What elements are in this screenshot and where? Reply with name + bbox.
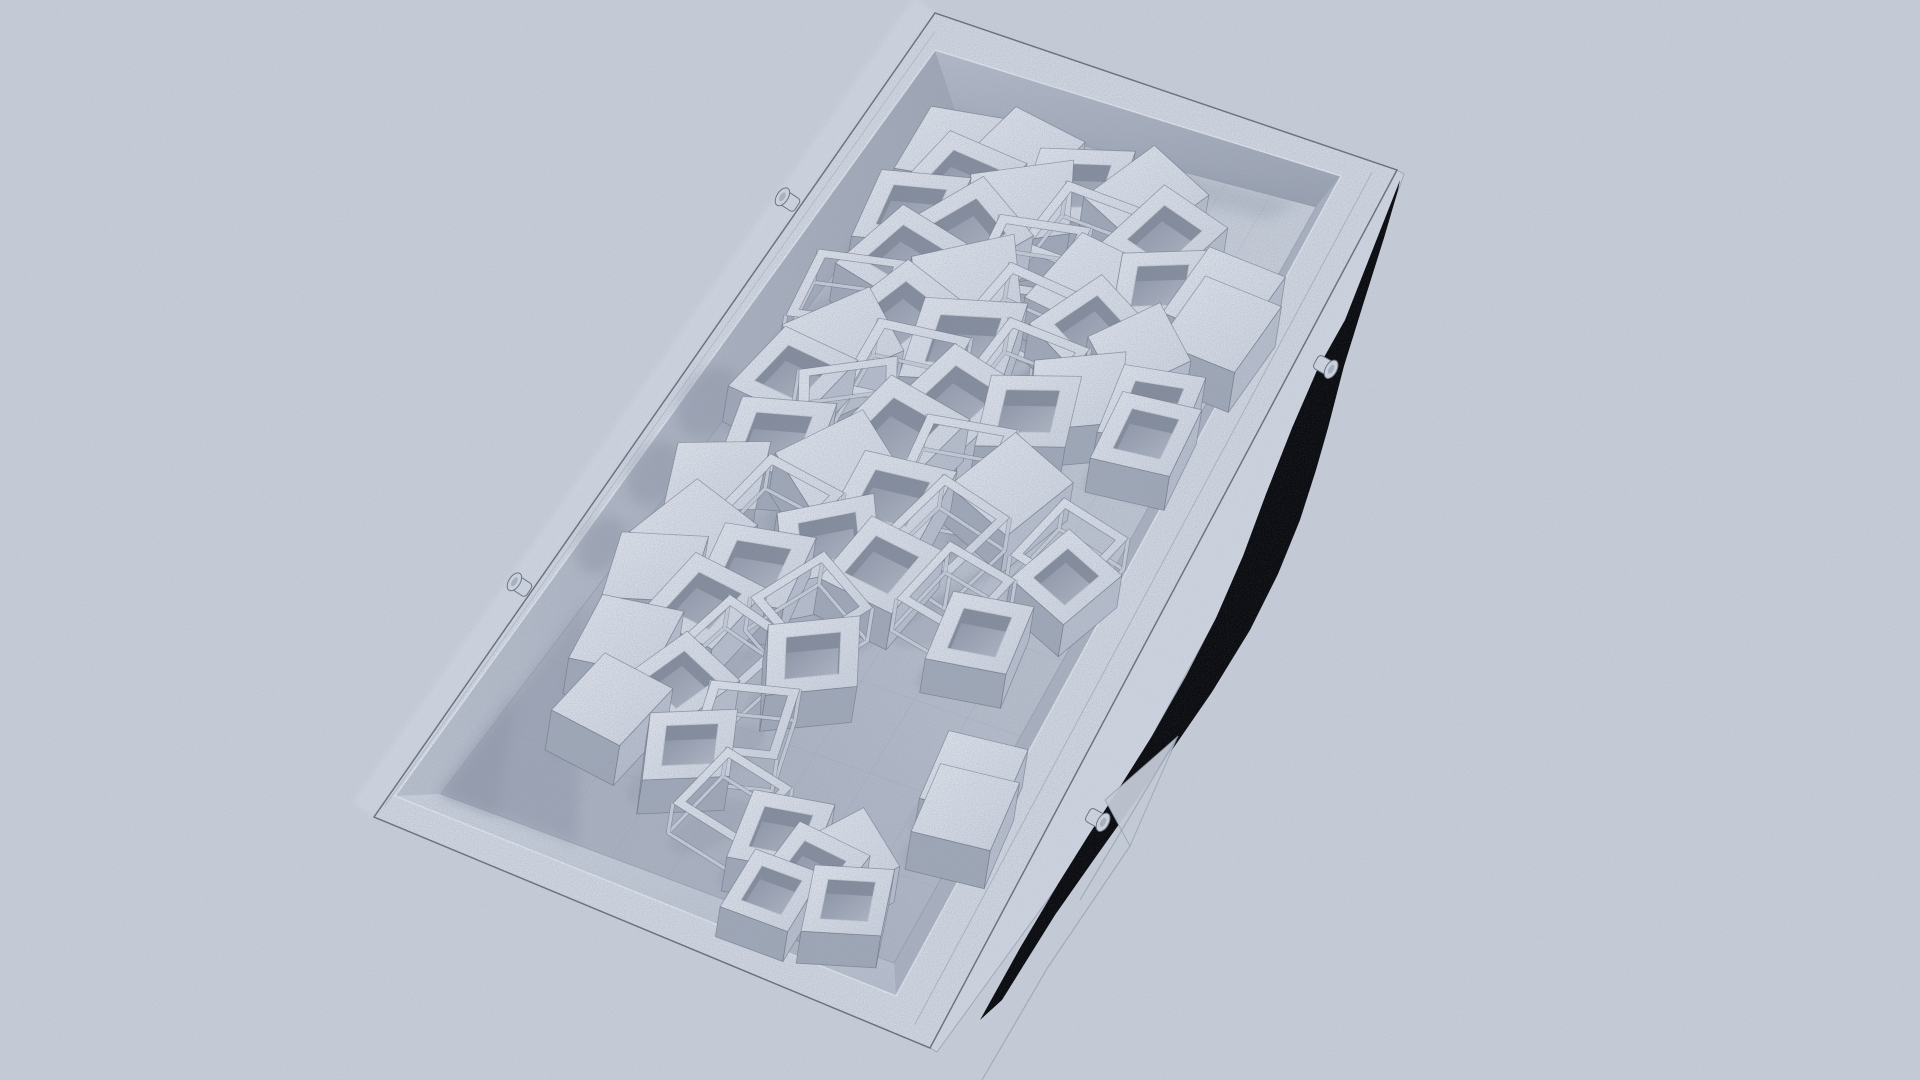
render-viewport	[0, 0, 1920, 1080]
render-canvas	[0, 0, 1920, 1080]
